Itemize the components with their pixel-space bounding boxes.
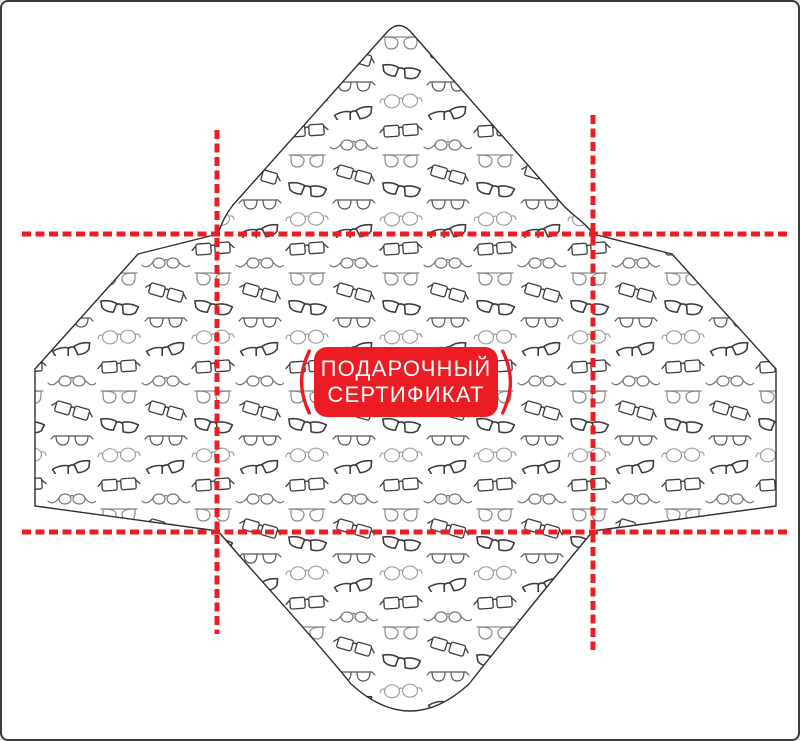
envelope-template-page: ПОДАРОЧНЫЙ СЕРТИФИКАТ bbox=[0, 0, 800, 741]
gift-certificate-label: ПОДАРОЧНЫЙ СЕРТИФИКАТ bbox=[299, 343, 513, 421]
right-bracket-decoration bbox=[501, 343, 513, 421]
badge-line-2: СЕРТИФИКАТ bbox=[327, 382, 484, 408]
gift-certificate-badge: ПОДАРОЧНЫЙ СЕРТИФИКАТ bbox=[314, 347, 498, 417]
left-bracket-decoration bbox=[299, 343, 311, 421]
badge-line-1: ПОДАРОЧНЫЙ bbox=[321, 356, 492, 382]
